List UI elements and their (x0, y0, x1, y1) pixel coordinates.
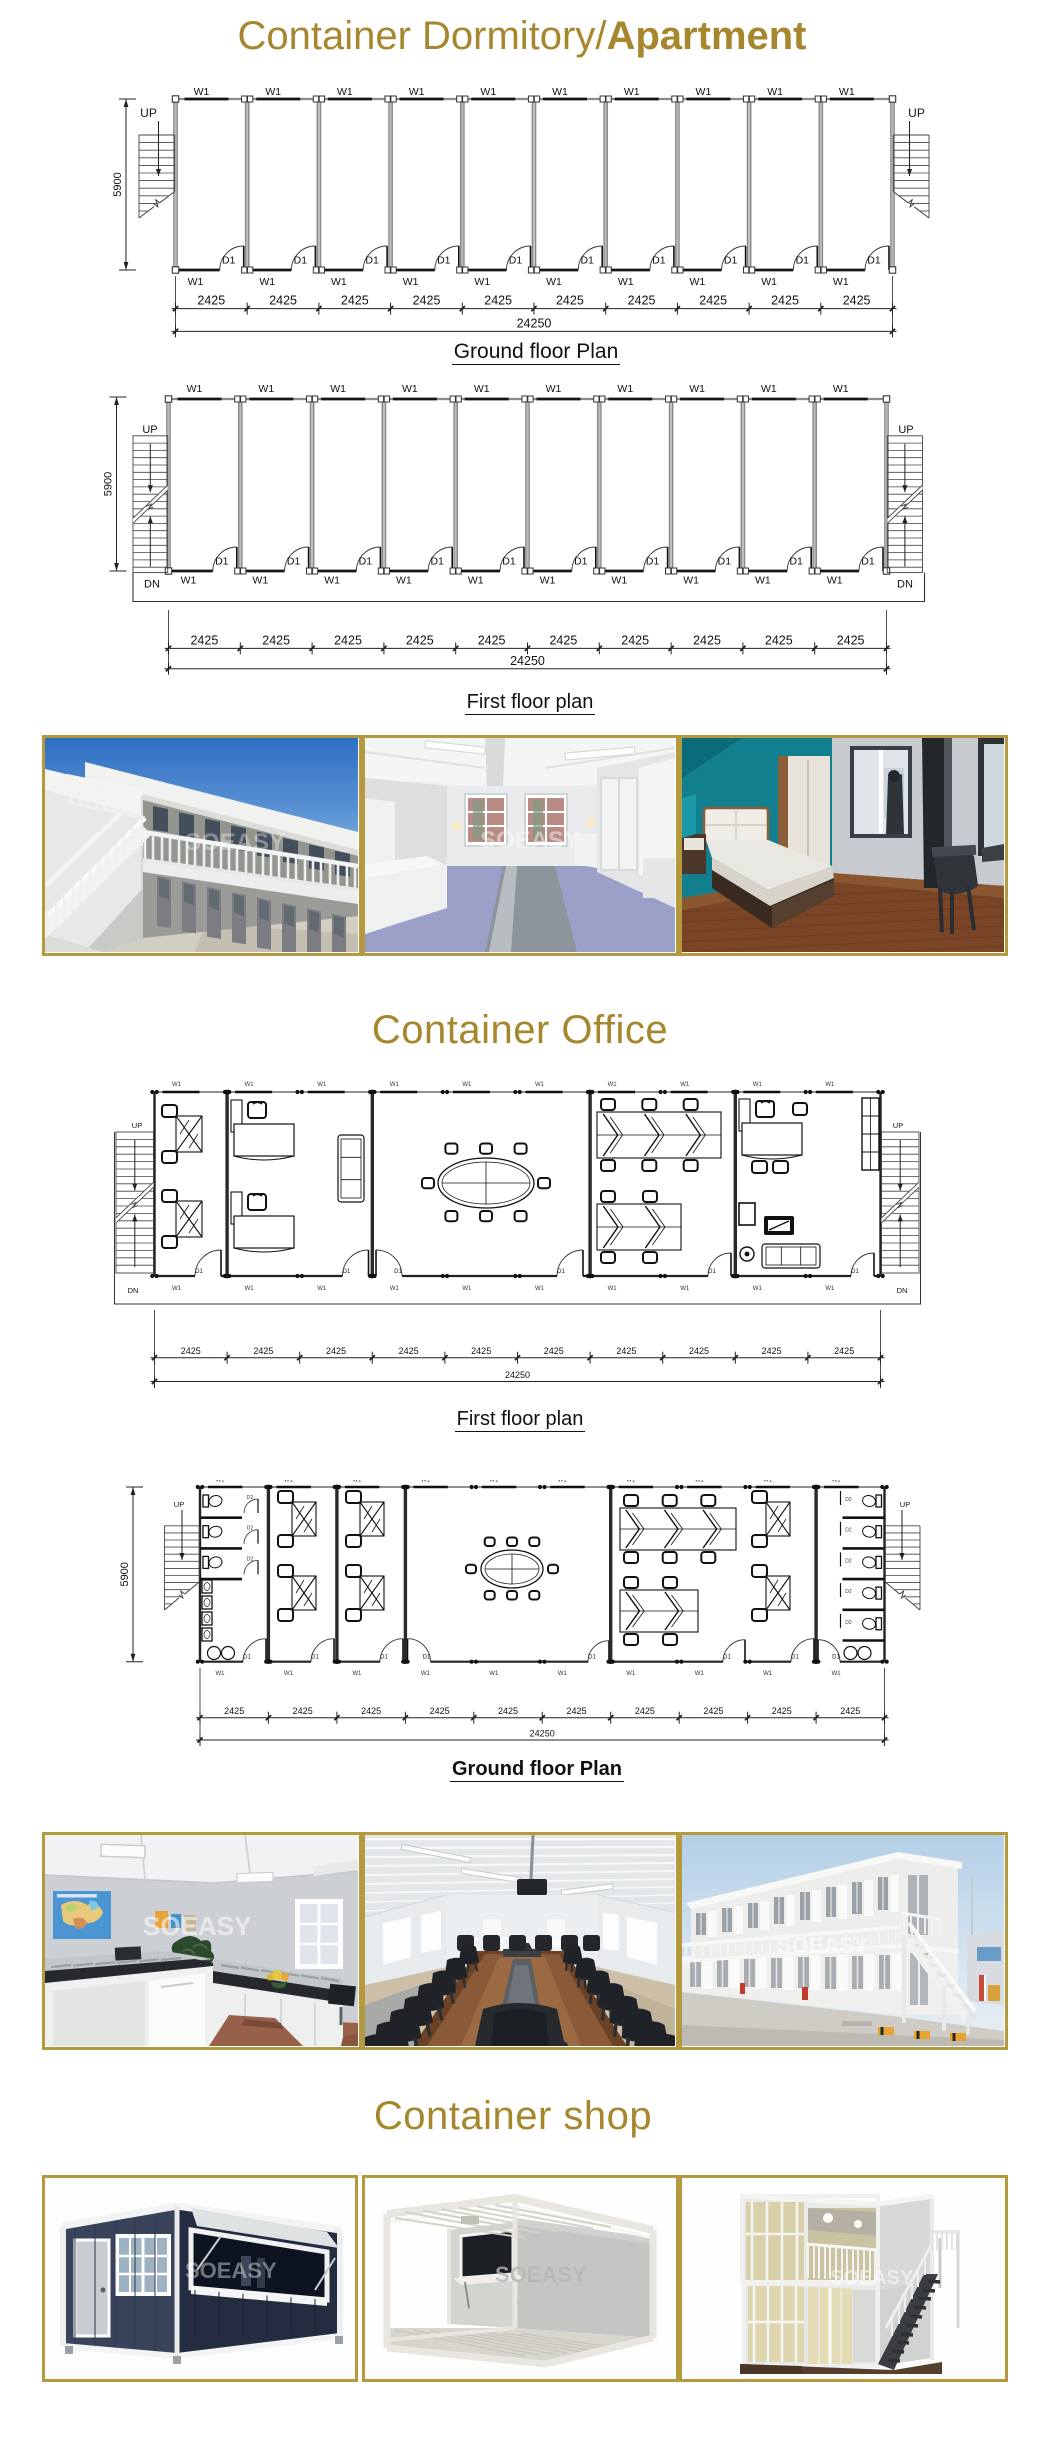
svg-text:W1: W1 (284, 1480, 294, 1484)
svg-text:W1: W1 (535, 1082, 545, 1088)
svg-text:D1: D1 (430, 556, 444, 568)
svg-text:D1: D1 (723, 1655, 731, 1661)
svg-text:2425: 2425 (621, 634, 649, 648)
svg-text:W1: W1 (390, 1286, 400, 1292)
svg-text:W1: W1 (763, 1671, 773, 1677)
svg-text:W1: W1 (696, 86, 712, 98)
svg-text:D1: D1 (222, 255, 236, 267)
svg-text:W1: W1 (680, 1286, 690, 1292)
svg-text:D2: D2 (845, 1497, 852, 1503)
svg-text:SOEASY: SOEASY (830, 2267, 914, 2289)
svg-text:W1: W1 (611, 575, 627, 587)
svg-text:W1: W1 (284, 1671, 294, 1677)
svg-text:D2: D2 (247, 1556, 254, 1562)
svg-text:D2: D2 (845, 1528, 852, 1534)
svg-text:W1: W1 (755, 575, 771, 587)
svg-text:W1: W1 (546, 383, 562, 395)
svg-text:W1: W1 (626, 1480, 636, 1484)
svg-text:5900: 5900 (103, 472, 115, 496)
svg-text:W1: W1 (833, 383, 849, 395)
svg-text:W1: W1 (245, 1082, 255, 1088)
svg-text:W1: W1 (252, 575, 268, 587)
svg-text:W1: W1 (608, 1286, 618, 1292)
svg-text:2425: 2425 (837, 634, 865, 648)
svg-text:W1: W1 (337, 86, 353, 98)
svg-text:D1: D1 (215, 556, 229, 568)
svg-text:W1: W1 (825, 1082, 835, 1088)
svg-text:2425: 2425 (772, 1706, 792, 1716)
svg-text:D1: D1 (791, 1655, 799, 1661)
svg-text:2425: 2425 (471, 1346, 491, 1356)
svg-text:2425: 2425 (334, 634, 362, 648)
svg-text:D1: D1 (343, 1269, 351, 1275)
svg-text:UP: UP (174, 1500, 184, 1509)
svg-text:UP: UP (900, 1500, 910, 1509)
svg-text:W1: W1 (624, 86, 640, 98)
svg-text:2425: 2425 (556, 294, 584, 308)
svg-text:2425: 2425 (689, 1346, 709, 1356)
svg-text:W1: W1 (761, 383, 777, 395)
svg-text:W1: W1 (421, 1480, 431, 1484)
svg-text:SOEASY: SOEASY (480, 827, 580, 854)
svg-text:D1: D1 (294, 255, 308, 267)
svg-text:2425: 2425 (762, 1346, 782, 1356)
svg-text:2425: 2425 (765, 634, 793, 648)
svg-text:W1: W1 (767, 86, 783, 98)
svg-text:UP: UP (893, 1121, 903, 1130)
svg-text:24250: 24250 (530, 1729, 555, 1739)
svg-text:D1: D1 (708, 1269, 716, 1275)
svg-text:2425: 2425 (326, 1346, 346, 1356)
svg-text:W1: W1 (258, 383, 274, 395)
svg-text:W1: W1 (409, 86, 425, 98)
svg-text:W1: W1 (194, 86, 210, 98)
svg-text:D1: D1 (652, 255, 666, 267)
svg-text:W1: W1 (330, 383, 346, 395)
svg-text:D1: D1 (359, 556, 373, 568)
svg-text:W1: W1 (480, 86, 496, 98)
svg-text:W1: W1 (761, 276, 777, 288)
svg-text:DN: DN (128, 1286, 139, 1295)
svg-text:D2: D2 (845, 1558, 852, 1564)
svg-text:2425: 2425 (693, 634, 721, 648)
svg-text:2425: 2425 (834, 1346, 854, 1356)
svg-text:2425: 2425 (181, 1346, 201, 1356)
svg-text:2425: 2425 (843, 294, 871, 308)
svg-text:W1: W1 (474, 276, 490, 288)
svg-text:W1: W1 (489, 1671, 499, 1677)
svg-text:2425: 2425 (430, 1706, 450, 1716)
svg-text:W1: W1 (626, 1671, 636, 1677)
svg-text:W1: W1 (689, 383, 705, 395)
svg-text:D2: D2 (845, 1620, 852, 1626)
svg-text:D1: D1 (832, 1655, 840, 1661)
svg-text:2425: 2425 (549, 634, 577, 648)
svg-text:W1: W1 (558, 1480, 568, 1484)
svg-text:D1: D1 (796, 255, 810, 267)
svg-text:SOEASY: SOEASY (495, 2262, 587, 2287)
svg-text:W1: W1 (396, 575, 412, 587)
svg-text:W1: W1 (462, 1082, 472, 1088)
svg-text:D1: D1 (243, 1655, 251, 1661)
svg-text:2425: 2425 (544, 1346, 564, 1356)
svg-text:UP: UP (140, 106, 157, 120)
svg-text:W1: W1 (690, 276, 706, 288)
svg-text:2425: 2425 (484, 294, 512, 308)
svg-text:W1: W1 (683, 575, 699, 587)
svg-text:W1: W1 (331, 276, 347, 288)
svg-text:W1: W1 (462, 1286, 472, 1292)
svg-text:UP: UP (132, 1121, 142, 1130)
svg-text:24250: 24250 (505, 1370, 530, 1380)
svg-text:2425: 2425 (341, 294, 369, 308)
svg-text:W1: W1 (245, 1286, 255, 1292)
svg-text:D2: D2 (247, 1495, 254, 1501)
svg-text:SOEASY: SOEASY (777, 1933, 869, 1958)
svg-text:DN: DN (897, 1286, 908, 1295)
svg-text:SOEASY: SOEASY (143, 1911, 251, 1941)
svg-text:D1: D1 (311, 1655, 319, 1661)
svg-text:W1: W1 (421, 1671, 431, 1677)
svg-text:2425: 2425 (478, 634, 506, 648)
svg-text:D1: D1 (861, 556, 875, 568)
svg-text:UP: UP (908, 106, 925, 120)
svg-text:W1: W1 (403, 276, 419, 288)
svg-text:24250: 24250 (517, 317, 552, 331)
svg-text:2425: 2425 (197, 294, 225, 308)
svg-text:2425: 2425 (361, 1706, 381, 1716)
svg-text:D1: D1 (588, 1655, 596, 1661)
svg-text:5900: 5900 (119, 1562, 131, 1586)
svg-text:D1: D1 (789, 556, 803, 568)
svg-text:UP: UP (898, 424, 913, 436)
svg-text:2425: 2425 (566, 1706, 586, 1716)
svg-text:W1: W1 (390, 1082, 400, 1088)
svg-text:2425: 2425 (498, 1706, 518, 1716)
svg-text:W1: W1 (825, 1286, 835, 1292)
svg-text:W1: W1 (695, 1480, 705, 1484)
svg-text:W1: W1 (216, 1480, 226, 1484)
svg-text:W1: W1 (832, 1671, 842, 1677)
svg-text:W1: W1 (695, 1671, 705, 1677)
svg-text:W1: W1 (617, 383, 633, 395)
svg-text:W1: W1 (265, 86, 281, 98)
svg-text:2425: 2425 (771, 294, 799, 308)
svg-text:W1: W1 (172, 1286, 182, 1292)
svg-text:W1: W1 (535, 1286, 545, 1292)
svg-text:W1: W1 (188, 276, 204, 288)
svg-text:2425: 2425 (399, 1346, 419, 1356)
svg-text:W1: W1 (216, 1671, 226, 1677)
svg-text:W1: W1 (259, 276, 275, 288)
svg-text:W1: W1 (552, 86, 568, 98)
svg-text:2425: 2425 (293, 1706, 313, 1716)
svg-text:2425: 2425 (840, 1706, 860, 1716)
svg-text:W1: W1 (839, 86, 855, 98)
svg-text:W1: W1 (833, 276, 849, 288)
svg-text:D1: D1 (423, 1655, 431, 1661)
svg-text:24250: 24250 (510, 654, 545, 668)
svg-text:D1: D1 (557, 1269, 565, 1275)
svg-text:D1: D1 (380, 1655, 388, 1661)
svg-text:D1: D1 (509, 255, 523, 267)
svg-text:D1: D1 (580, 255, 594, 267)
svg-text:2425: 2425 (262, 634, 290, 648)
svg-text:D1: D1 (287, 556, 301, 568)
svg-text:W1: W1 (187, 383, 203, 395)
svg-text:W1: W1 (680, 1082, 690, 1088)
svg-text:W1: W1 (608, 1082, 618, 1088)
svg-text:2425: 2425 (190, 634, 218, 648)
svg-text:UP: UP (142, 424, 157, 436)
svg-text:D1: D1 (195, 1269, 203, 1275)
svg-text:W1: W1 (317, 1082, 327, 1088)
svg-text:W1: W1 (324, 575, 340, 587)
svg-text:D1: D1 (437, 255, 451, 267)
svg-text:2425: 2425 (253, 1346, 273, 1356)
svg-text:W1: W1 (317, 1286, 327, 1292)
svg-text:W1: W1 (402, 383, 418, 395)
svg-text:D2: D2 (845, 1589, 852, 1595)
svg-text:D1: D1 (646, 556, 660, 568)
svg-text:D1: D1 (394, 1269, 402, 1275)
svg-text:5900: 5900 (112, 172, 124, 196)
svg-text:SOEASY: SOEASY (185, 829, 285, 856)
svg-text:2425: 2425 (703, 1706, 723, 1716)
svg-text:D1: D1 (502, 556, 516, 568)
svg-text:D1: D1 (867, 255, 881, 267)
svg-text:W1: W1 (489, 1480, 499, 1484)
svg-text:W1: W1 (558, 1671, 568, 1677)
svg-text:W1: W1 (540, 575, 556, 587)
svg-text:D1: D1 (851, 1269, 859, 1275)
svg-text:D1: D1 (718, 556, 732, 568)
svg-text:W1: W1 (352, 1480, 362, 1484)
svg-text:W1: W1 (832, 1480, 842, 1484)
svg-text:W1: W1 (827, 575, 843, 587)
svg-text:W1: W1 (753, 1082, 763, 1088)
svg-text:2425: 2425 (635, 1706, 655, 1716)
svg-text:W1: W1 (352, 1671, 362, 1677)
svg-text:2425: 2425 (628, 294, 656, 308)
svg-text:SOEASY: SOEASY (185, 2258, 277, 2283)
svg-text:W1: W1 (546, 276, 562, 288)
svg-text:W1: W1 (474, 383, 490, 395)
svg-text:W1: W1 (753, 1286, 763, 1292)
svg-text:2425: 2425 (616, 1346, 636, 1356)
svg-text:DN: DN (144, 579, 160, 591)
svg-text:W1: W1 (468, 575, 484, 587)
svg-text:D1: D1 (724, 255, 738, 267)
svg-text:2425: 2425 (413, 294, 441, 308)
svg-text:D2: D2 (247, 1526, 254, 1532)
svg-text:DN: DN (897, 579, 913, 591)
svg-text:D1: D1 (365, 255, 379, 267)
svg-text:2425: 2425 (269, 294, 297, 308)
svg-text:2425: 2425 (406, 634, 434, 648)
svg-text:W1: W1 (181, 575, 197, 587)
svg-text:W1: W1 (618, 276, 634, 288)
svg-text:2425: 2425 (224, 1706, 244, 1716)
svg-text:D1: D1 (574, 556, 588, 568)
svg-text:W1: W1 (763, 1480, 773, 1484)
svg-text:W1: W1 (172, 1082, 182, 1088)
svg-text:2425: 2425 (699, 294, 727, 308)
